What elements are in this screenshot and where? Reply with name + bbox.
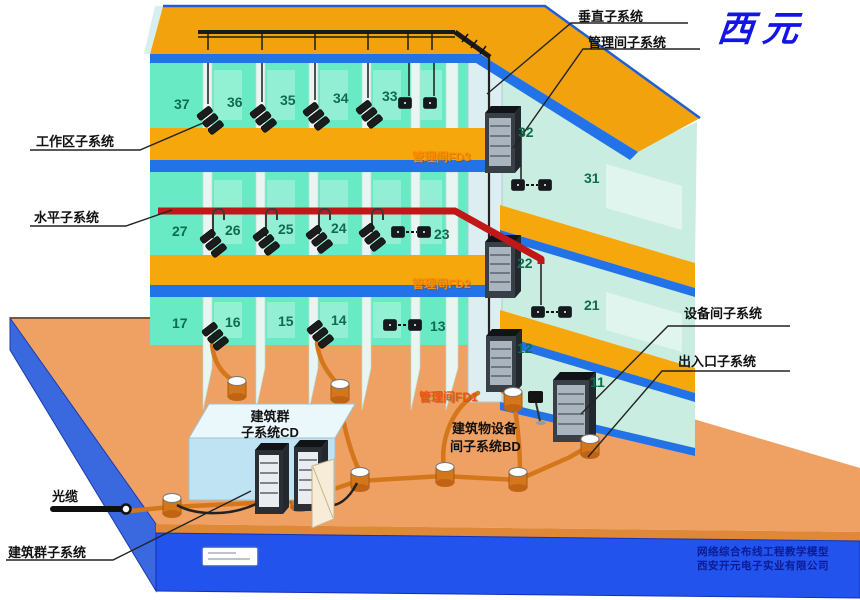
room-number: 12 — [517, 340, 533, 356]
label-work-area-subsystem: 工作区子系统 — [36, 131, 114, 150]
manufacturer-text: 网络综合布线工程教学模型 西安开元电子实业有限公司 — [668, 545, 858, 573]
nameplate — [202, 547, 258, 566]
label-cd-line2: 子系统CD — [210, 422, 330, 441]
room-number: 27 — [172, 223, 188, 239]
room-number: 14 — [331, 312, 347, 328]
manufacturer-line2: 西安开元电子实业有限公司 — [668, 559, 858, 573]
label-horizontal-subsystem: 水平子系统 — [34, 207, 99, 226]
room-number: 37 — [174, 96, 190, 112]
room-number: 35 — [280, 92, 296, 108]
room-number: 33 — [382, 88, 398, 104]
label-bd-line1: 建筑物设备 — [452, 418, 517, 437]
room-number: 25 — [278, 221, 294, 237]
cabling-diagram: 西元 垂直子系统 管理间子系统 工作区子系统 水平子系统 设备间子系统 出入口子… — [0, 0, 860, 600]
room-number: 17 — [172, 315, 188, 331]
room-number: 24 — [331, 220, 347, 236]
brand-logo: 西元 — [715, 0, 810, 52]
label-campus-subsystem: 建筑群子系统 — [8, 542, 86, 561]
manufacturer-line1: 网络综合布线工程教学模型 — [668, 545, 858, 559]
room-number: 26 — [225, 222, 241, 238]
room-number: 23 — [434, 226, 450, 242]
room-number: 13 — [430, 318, 446, 334]
room-number: 21 — [584, 297, 600, 313]
label-fiber-cable: 光缆 — [52, 486, 78, 505]
room-number: 16 — [225, 314, 241, 330]
entrance-door — [312, 459, 334, 528]
rack-cd-1-icon — [255, 443, 289, 514]
room-number: 32 — [518, 124, 534, 140]
room-number: 36 — [227, 94, 243, 110]
label-fd3: 管理间FD3 — [412, 148, 471, 165]
label-entrance-subsystem: 出入口子系统 — [678, 351, 756, 370]
rack-fd1-icon — [486, 329, 522, 392]
room-number: 15 — [278, 313, 294, 329]
label-equipment-room-subsystem: 设备间子系统 — [684, 303, 762, 322]
label-bd-line2: 间子系统BD — [450, 436, 521, 455]
room-number: 34 — [333, 90, 349, 106]
label-vertical-subsystem: 垂直子系统 — [578, 6, 643, 25]
room-number: 11 — [590, 374, 605, 390]
label-fd1: 管理间FD1 — [419, 388, 478, 405]
room-number: 22 — [517, 255, 533, 271]
building-diagram-graphics — [0, 0, 860, 600]
rack-fd3-icon — [485, 106, 521, 173]
label-fd2: 管理间FD2 — [412, 275, 471, 292]
room-number: 31 — [584, 170, 600, 186]
label-management-room-subsystem: 管理间子系统 — [588, 32, 666, 51]
